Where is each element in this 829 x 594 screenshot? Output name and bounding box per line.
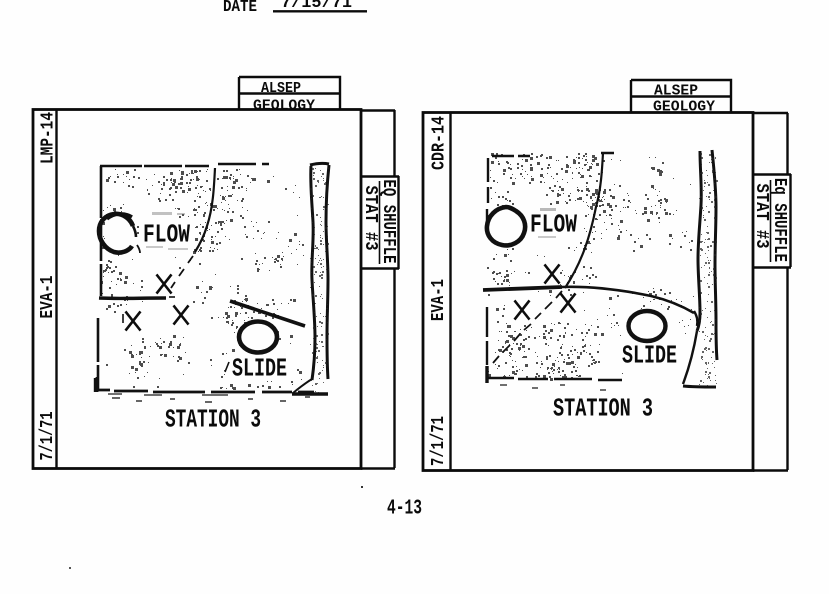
svg-text:ALSEP: ALSEP <box>654 83 698 100</box>
svg-text:LMP-14: LMP-14 <box>39 112 59 164</box>
svg-text:SLIDE: SLIDE <box>622 341 677 371</box>
svg-text:DATE: DATE <box>223 0 257 16</box>
svg-text:FLOW: FLOW <box>530 210 577 240</box>
svg-text:7/1/71: 7/1/71 <box>429 416 449 466</box>
svg-text:EVA-1: EVA-1 <box>38 275 58 318</box>
svg-text:SLIDE: SLIDE <box>232 354 287 384</box>
svg-text:STATION 3: STATION 3 <box>165 406 261 435</box>
svg-text:FLOW: FLOW <box>143 220 190 250</box>
svg-text:GEOLOGY: GEOLOGY <box>253 98 315 115</box>
svg-text:STAT #3: STAT #3 <box>751 184 772 249</box>
svg-text:4-13: 4-13 <box>387 498 422 521</box>
svg-text:STAT #3: STAT #3 <box>360 186 381 251</box>
svg-text:ALSEP: ALSEP <box>261 80 301 97</box>
svg-text:CDR-14: CDR-14 <box>430 116 450 170</box>
svg-text:7/1/71: 7/1/71 <box>38 411 58 460</box>
svg-text:STATION 3: STATION 3 <box>553 395 653 424</box>
svg-text:EVA-1: EVA-1 <box>429 279 449 321</box>
